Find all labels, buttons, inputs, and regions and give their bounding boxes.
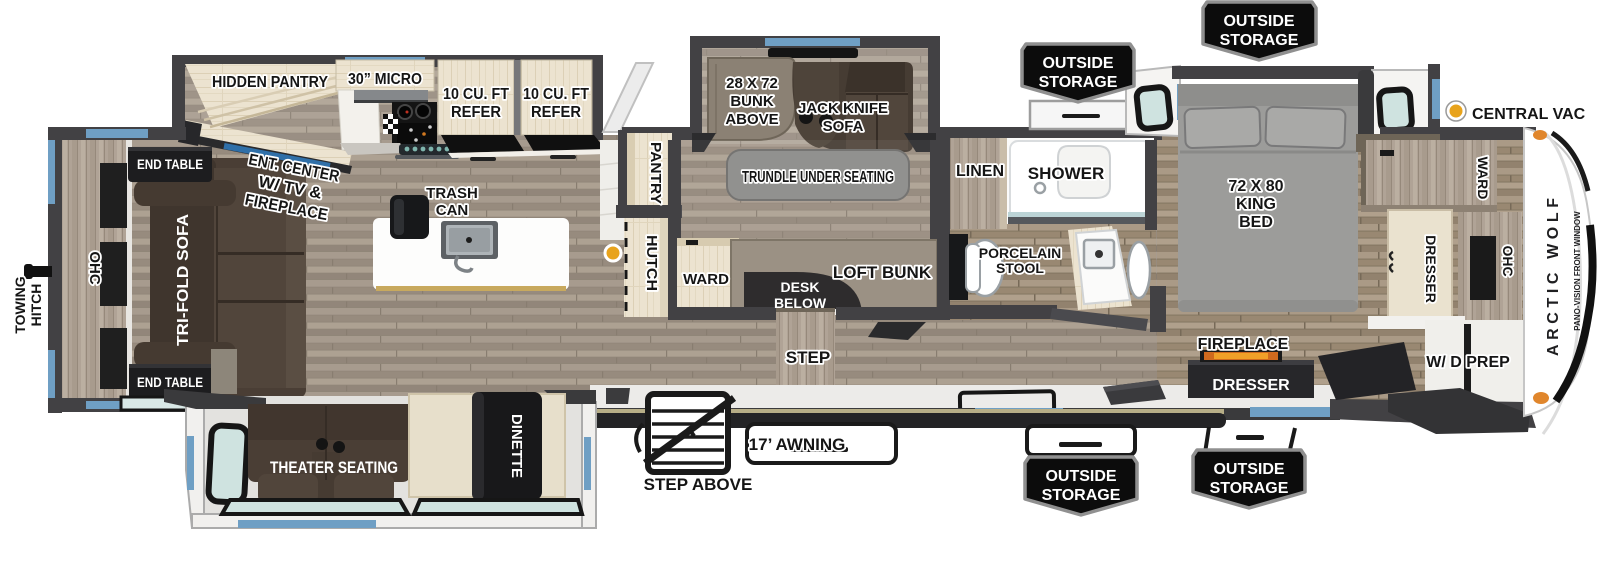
svg-text:CENTRAL VAC: CENTRAL VAC (1472, 106, 1586, 123)
svg-text:72 X 80: 72 X 80 (1228, 178, 1283, 195)
svg-text:WARD: WARD (683, 271, 729, 288)
svg-text:28 X 72: 28 X 72 (726, 75, 778, 92)
svg-text:ARCTIC WOLF: ARCTIC WOLF (1545, 198, 1562, 356)
svg-text:LINEN: LINEN (956, 163, 1004, 180)
svg-text:DINETTE: DINETTE (508, 414, 525, 478)
svg-text:PORCELAIN: PORCELAIN (979, 245, 1061, 261)
svg-text:STORAGE: STORAGE (1039, 74, 1118, 91)
svg-text:STEP ABOVE: STEP ABOVE (644, 475, 753, 494)
svg-text:OUTSIDE: OUTSIDE (1223, 13, 1294, 30)
svg-text:OUTSIDE: OUTSIDE (1213, 461, 1284, 478)
svg-text:THEATER SEATING: THEATER SEATING (270, 458, 398, 477)
svg-text:REFER: REFER (531, 104, 581, 121)
svg-text:ABOVE: ABOVE (725, 111, 778, 128)
svg-text:10 CU. FT: 10 CU. FT (443, 86, 509, 103)
svg-text:SOFA: SOFA (823, 118, 864, 135)
svg-text:TRUNDLE UNDER SEATING: TRUNDLE UNDER SEATING (742, 169, 894, 186)
svg-text:OHC: OHC (86, 251, 103, 285)
svg-text:SHOWER: SHOWER (1028, 164, 1105, 183)
svg-text:END TABLE: END TABLE (137, 157, 203, 172)
svg-text:HUTCH: HUTCH (643, 235, 660, 291)
svg-text:OHC: OHC (1500, 245, 1516, 276)
svg-text:STORAGE: STORAGE (1210, 480, 1289, 497)
svg-text:PANO-VISION FRONT WINDOW: PANO-VISION FRONT WINDOW (1573, 211, 1582, 331)
svg-text:FIREPLACE: FIREPLACE (1198, 336, 1289, 353)
svg-text:LOFT BUNK: LOFT BUNK (833, 263, 932, 282)
svg-text:TRI-FOLD SOFA: TRI-FOLD SOFA (175, 214, 192, 346)
svg-text:STORAGE: STORAGE (1220, 32, 1299, 49)
svg-text:CAN: CAN (436, 202, 469, 219)
svg-text:STORAGE: STORAGE (1042, 487, 1121, 504)
svg-text:JACK KNIFE: JACK KNIFE (798, 100, 888, 117)
svg-text:TRASH: TRASH (426, 185, 478, 202)
svg-text:BELOW: BELOW (774, 295, 827, 311)
svg-text:10 CU. FT: 10 CU. FT (523, 86, 589, 103)
svg-text:STOOL: STOOL (996, 260, 1044, 276)
svg-text:KING: KING (1236, 196, 1276, 213)
svg-text:DESK: DESK (781, 279, 820, 295)
svg-text:BUNK: BUNK (730, 93, 773, 110)
svg-text:BED: BED (1239, 214, 1273, 231)
svg-text:REFER: REFER (451, 104, 501, 121)
svg-text:TOWING: TOWING (12, 276, 28, 333)
svg-text:DRESSER: DRESSER (1423, 235, 1439, 303)
svg-text:30” MICRO: 30” MICRO (348, 71, 422, 88)
svg-text:WARD: WARD (1475, 157, 1491, 200)
svg-text:W/ D PREP: W/ D PREP (1426, 354, 1510, 371)
svg-text:17’ AWNING: 17’ AWNING (749, 435, 846, 454)
svg-text:HIDDEN PANTRY: HIDDEN PANTRY (212, 74, 328, 91)
svg-text:OUTSIDE: OUTSIDE (1045, 468, 1116, 485)
svg-text:OUTSIDE: OUTSIDE (1042, 55, 1113, 72)
svg-text:END TABLE: END TABLE (137, 375, 203, 390)
svg-text:STEP: STEP (786, 348, 830, 367)
svg-text:HITCH: HITCH (28, 284, 44, 327)
svg-text:PANTRY: PANTRY (647, 142, 664, 204)
svg-text:DRESSER: DRESSER (1212, 377, 1290, 394)
